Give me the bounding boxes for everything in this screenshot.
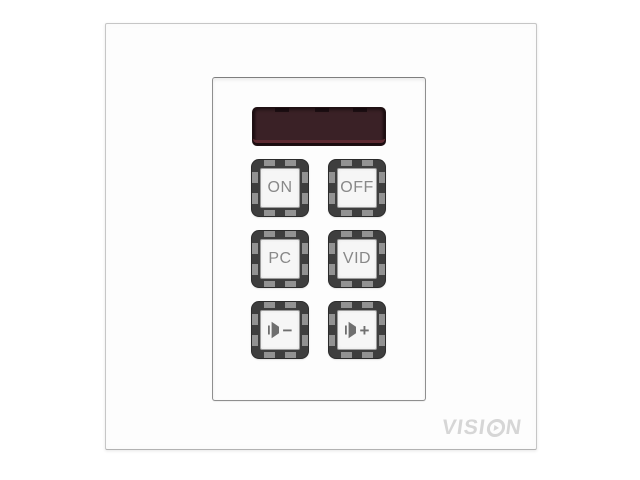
logo-text-left: VISI [440, 416, 487, 440]
play-triangle-icon [493, 425, 499, 431]
minus-sign: − [283, 322, 293, 339]
vid-button[interactable]: VID [329, 231, 385, 287]
keypad-panel: ON OFF PC VID [212, 77, 426, 401]
pc-button-label: PC [268, 251, 291, 267]
volume-down-glyph: − [268, 321, 293, 339]
button-grid: ON OFF PC VID [252, 160, 385, 358]
led-display [252, 107, 386, 146]
product-image: ON OFF PC VID [0, 0, 640, 480]
vision-logo: VISI N [440, 417, 523, 439]
keycap: − [260, 310, 300, 350]
volume-up-glyph: + [345, 321, 370, 339]
volume-down-button[interactable]: − [252, 302, 308, 358]
volume-up-button[interactable]: + [329, 302, 385, 358]
keycap: OFF [337, 168, 377, 208]
pc-button[interactable]: PC [252, 231, 308, 287]
speaker-icon [268, 321, 282, 339]
on-button[interactable]: ON [252, 160, 308, 216]
off-button-label: OFF [340, 180, 374, 196]
keycap: ON [260, 168, 300, 208]
wall-plate: ON OFF PC VID [105, 23, 537, 450]
keycap: PC [260, 239, 300, 279]
keycap: VID [337, 239, 377, 279]
vid-button-label: VID [343, 251, 371, 267]
keycap: + [337, 310, 377, 350]
off-button[interactable]: OFF [329, 160, 385, 216]
on-button-label: ON [268, 180, 293, 196]
plus-sign: + [360, 322, 370, 339]
logo-text-right: N [504, 416, 524, 440]
speaker-icon [345, 321, 359, 339]
play-circle-icon [485, 419, 506, 437]
